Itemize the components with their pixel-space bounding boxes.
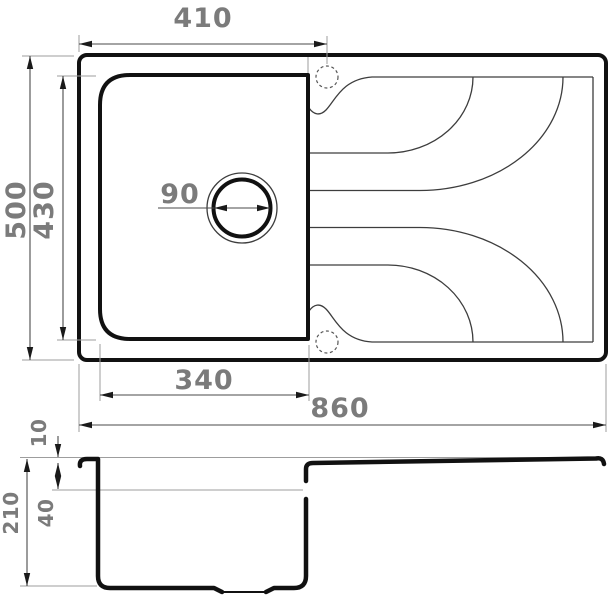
arrowhead <box>60 327 66 340</box>
arrowhead <box>314 41 327 47</box>
arrowhead <box>593 422 606 428</box>
dim-430-label: 430 <box>29 180 60 239</box>
arrowhead <box>55 476 61 489</box>
dim-340-label: 340 <box>174 365 233 396</box>
arrowhead <box>24 459 30 472</box>
arrowhead <box>296 392 309 398</box>
dim-500-label: 500 <box>1 180 32 239</box>
arrowhead <box>79 41 92 47</box>
arrowhead <box>55 444 61 457</box>
profile-bowl-right <box>266 499 306 592</box>
dim-40-label: 40 <box>34 499 58 528</box>
dim-860-label: 860 <box>310 393 369 424</box>
drawing-svg: 410 500 430 90 <box>0 0 612 600</box>
arrowhead <box>79 422 92 428</box>
profile-bowl-left <box>80 459 222 592</box>
profile-drainboard <box>306 458 604 481</box>
side-view-dimensions: 10 40 210 <box>0 419 61 586</box>
dim-860: 860 <box>79 364 606 432</box>
dim-210-label: 210 <box>0 491 23 534</box>
arrowhead <box>27 347 33 360</box>
dim-10: 10 <box>27 419 61 457</box>
arrowhead <box>24 573 30 586</box>
dim-210: 210 <box>0 459 30 586</box>
dim-40: 40 <box>34 463 61 527</box>
arrowhead <box>55 463 61 476</box>
dim-10-label: 10 <box>27 419 51 448</box>
arrowhead <box>27 56 33 69</box>
dim-410-label: 410 <box>173 3 232 34</box>
dim-90-label: 90 <box>160 179 200 210</box>
arrowhead <box>60 76 66 89</box>
sink-technical-drawing: 410 500 430 90 <box>0 0 612 600</box>
side-view <box>20 458 604 593</box>
arrowhead <box>100 392 113 398</box>
